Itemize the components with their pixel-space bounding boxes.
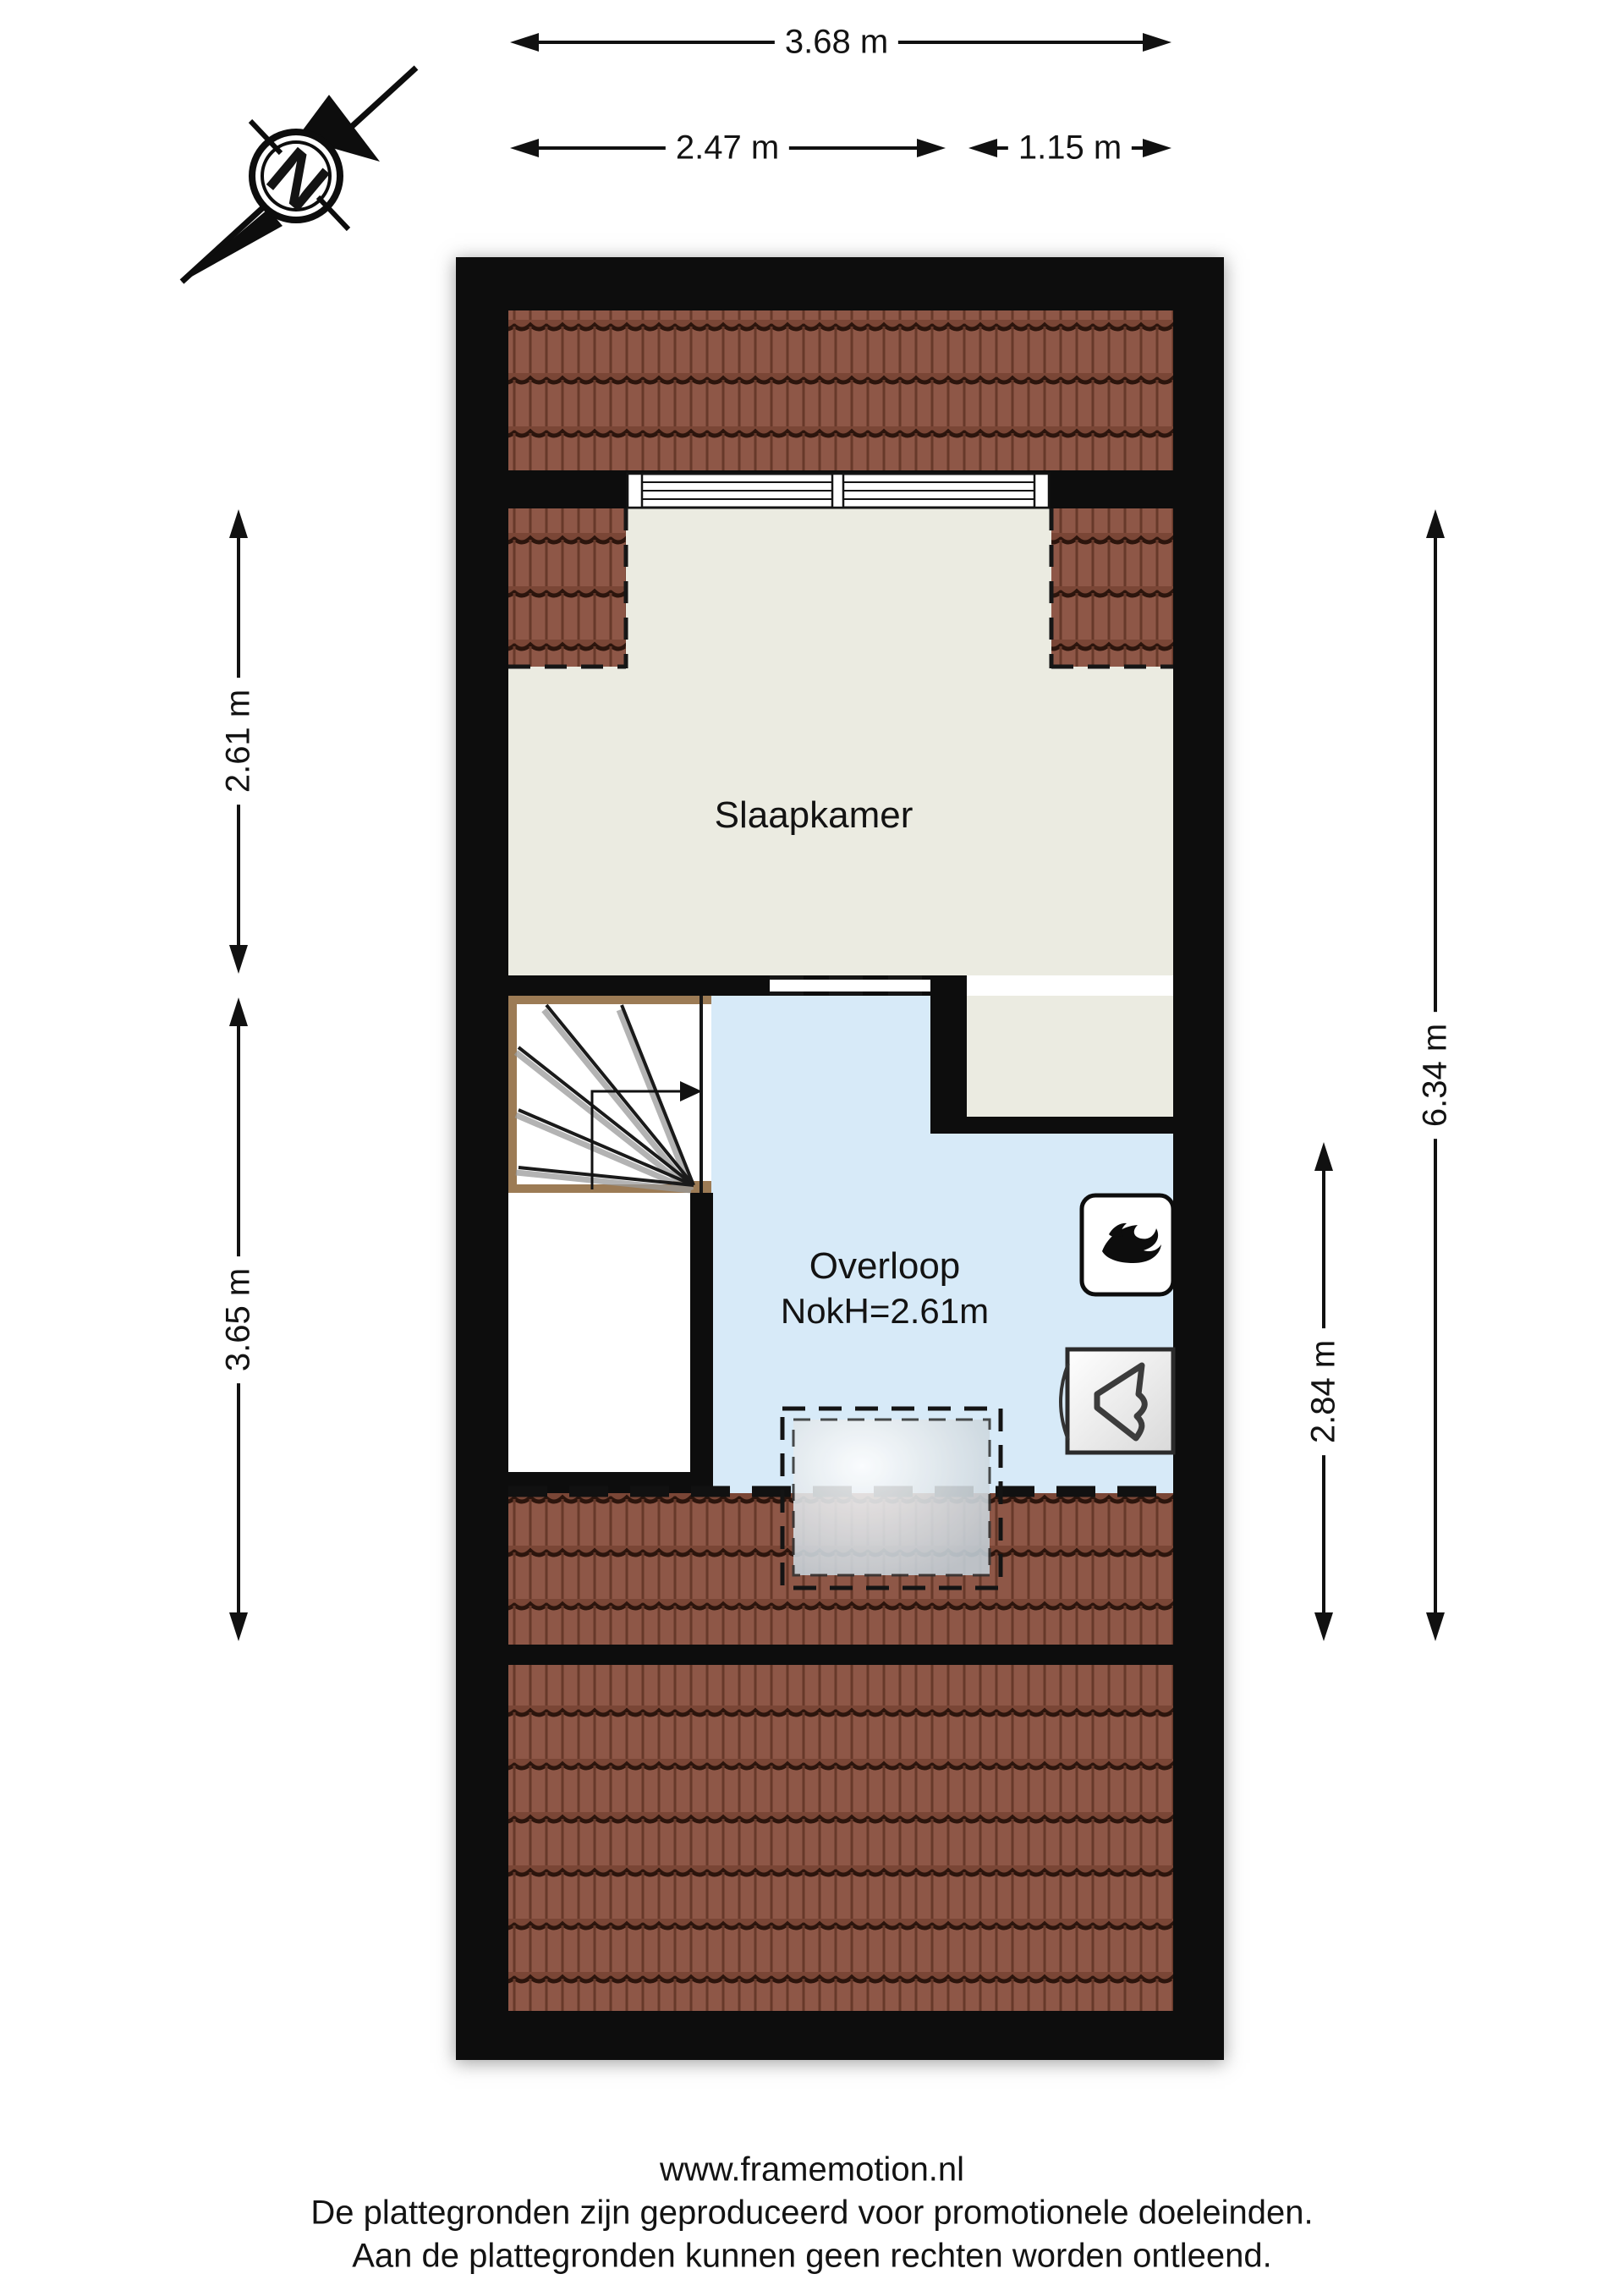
ventilation-unit-icon	[1061, 1349, 1173, 1453]
window	[628, 474, 1049, 508]
floorplan-drawing	[0, 0, 1624, 2296]
stair-void	[508, 1193, 690, 1472]
skylight	[782, 1409, 1001, 1588]
footer-disclaimer-1: De plattegronden zijn geproduceerd voor …	[310, 2194, 1313, 2233]
dimension-right-outer: 6.34 m	[1417, 1012, 1455, 1139]
boiler-icon	[1082, 1195, 1173, 1294]
room-label-overloop: Overloop	[809, 1245, 961, 1288]
doorway-opening	[770, 980, 930, 991]
stairs	[508, 996, 711, 1193]
dimension-top-right: 1.15 m	[1008, 129, 1132, 168]
room-label-slaapkamer: Slaapkamer	[715, 794, 913, 837]
dimension-top-total: 3.68 m	[775, 24, 898, 62]
dimension-right-inner: 2.84 m	[1305, 1328, 1343, 1455]
dimension-left-upper: 2.61 m	[220, 678, 258, 805]
dimension-left-lower: 3.65 m	[220, 1256, 258, 1383]
dimension-top-left: 2.47 m	[666, 129, 789, 168]
footer-disclaimer-2: Aan de plattegronden kunnen geen rechten…	[352, 2238, 1272, 2276]
floorplan-page: { "compass": { "label": "N" }, "dimensio…	[0, 0, 1624, 2296]
footer-website: www.framemotion.nl	[660, 2151, 964, 2189]
room-label-ridge-height: NokH=2.61m	[781, 1291, 989, 1332]
bedroom-floor-pocket	[967, 996, 1173, 1117]
